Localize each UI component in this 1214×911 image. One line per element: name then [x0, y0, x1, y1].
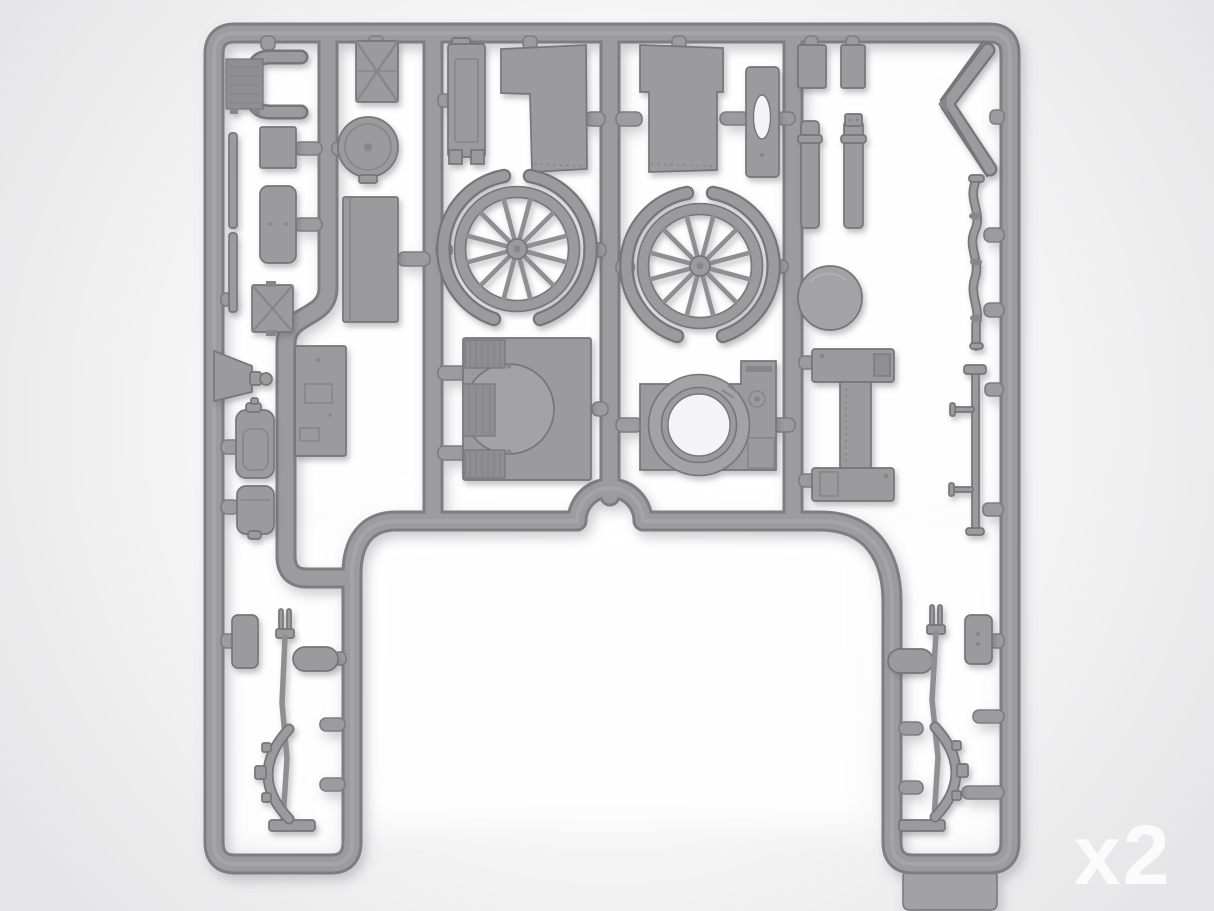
part-exhaust-tube-b	[841, 114, 866, 228]
part-radiator-shell	[448, 38, 485, 164]
sprue-gate-tab	[903, 872, 997, 910]
part-door-panel	[746, 67, 779, 177]
part-cross-braced-panel-small	[252, 281, 293, 336]
quantity-watermark: x2	[1074, 808, 1171, 902]
part-seat-pad-left	[232, 615, 258, 668]
part-exhaust-tube-a	[798, 121, 822, 228]
part-cross-braced-panel	[356, 41, 398, 102]
part-slat-bar	[260, 186, 296, 263]
part-seat-pad-right	[965, 615, 992, 664]
part-mounting-strips	[229, 133, 237, 312]
part-engine-fan-housing	[463, 338, 591, 480]
part-firewall-panel	[295, 346, 346, 456]
render-stage: x2	[0, 0, 1214, 911]
part-fuel-can	[237, 486, 274, 539]
part-grab-handle-left	[293, 647, 338, 671]
sprue-render: x2	[0, 0, 1214, 911]
part-tank-end-disc	[798, 266, 862, 330]
part-grab-handle-right	[888, 649, 933, 673]
part-small-panel	[260, 127, 296, 168]
part-body-side-panel-right	[640, 45, 723, 172]
part-floor-panel	[343, 197, 398, 322]
